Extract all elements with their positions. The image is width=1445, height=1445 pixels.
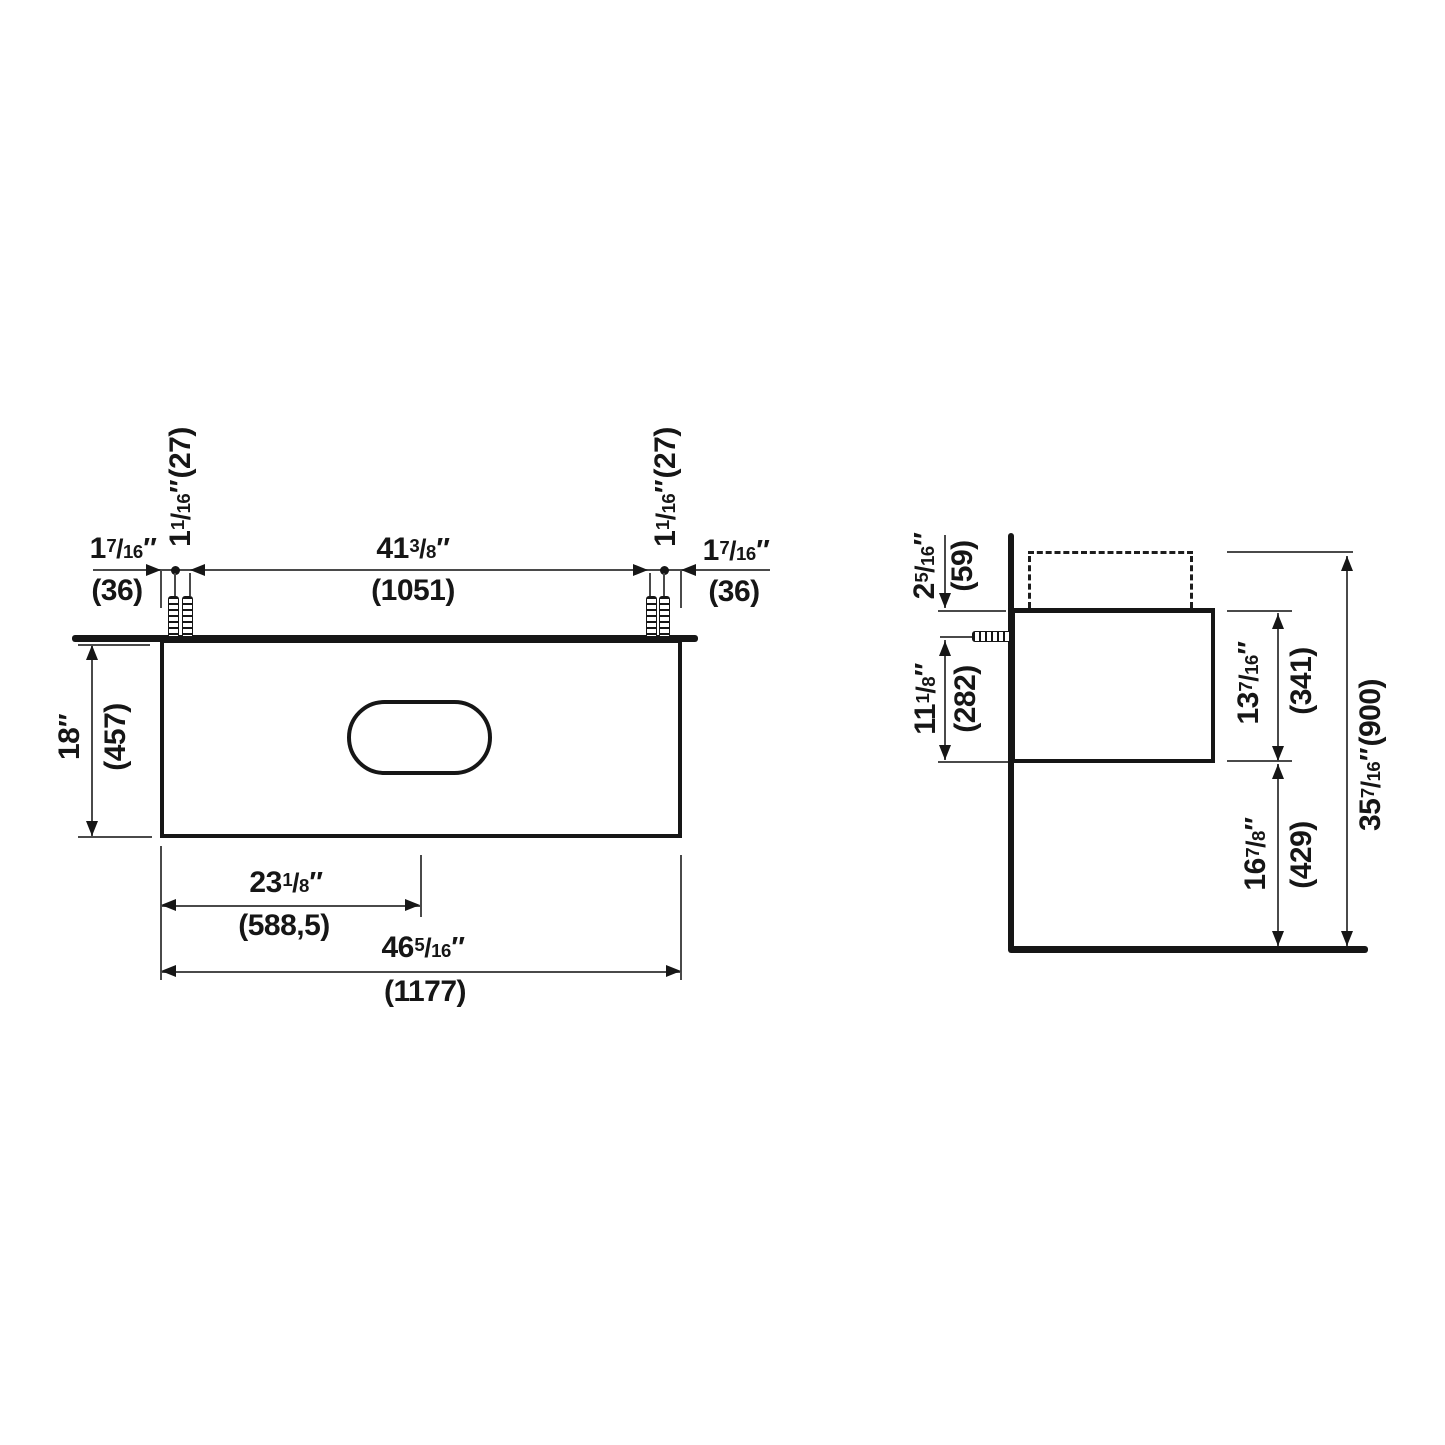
arrowhead [681,564,696,576]
dimension-line-depth [91,645,93,836]
dim-screw-span-metric: (1051) [371,576,455,606]
dim-anchor-inch: 111/8″ [911,663,941,735]
dim-screw-span-inch: 413/8″ [376,534,449,564]
arrowhead [190,564,205,576]
basin-cutout-oval [347,700,492,775]
arrowhead [86,645,98,660]
basin-dashed-top [1028,551,1193,554]
arrowhead [86,821,98,836]
dimension-line-width [161,971,681,973]
arrowhead [1272,746,1284,761]
extension-line [189,573,191,596]
arrowhead [161,965,176,977]
mounting-screw [646,596,657,637]
arrowhead [666,965,681,977]
extension-line [680,855,682,980]
dimension-line-anchor [944,640,946,760]
arrowhead [1272,614,1284,629]
dim-center-offset-metric: (588,5) [238,911,330,941]
extension-line [938,610,1006,612]
extension-line [938,761,1008,763]
extension-line [663,573,665,596]
arrowhead [1341,931,1353,946]
extension-line [420,855,422,917]
dim-screw-spacing-right: 11/16″(27) [651,427,681,547]
dim-width-inch: 465/16″ [381,933,464,963]
extension-line [78,836,152,838]
extension-line [78,644,150,646]
mounting-screw [168,596,179,637]
dim-clearance-metric: (429) [1287,821,1317,889]
extension-line [160,571,162,608]
dim-edge-offset-right-metric: (36) [708,577,759,607]
arrowhead [1272,764,1284,779]
dim-screw-spacing-left: 11/16″(27) [166,427,196,547]
basin-dashed-left [1028,556,1031,608]
arrowhead [939,745,951,760]
dim-center-offset-inch: 231/8″ [249,868,322,898]
mounting-screw [182,596,193,637]
extension-line [680,571,682,608]
extension-line [649,573,651,596]
basin-dashed-right [1190,556,1193,608]
arrowhead [161,899,176,911]
dim-rim-to-top-inch: 25/16″ [910,533,940,600]
dim-cabinet-height-inch: 137/16″ [1234,641,1264,724]
dimension-line-total-height [1346,556,1348,946]
dim-edge-offset-right-inch: 17/16″ [703,536,770,566]
dimension-line-center-offset [161,905,420,907]
dimension-line-clearance [1277,764,1279,946]
dimension-line-cabinet-height [1277,613,1279,761]
extension-line [174,573,176,596]
cabinet-side-outline [1011,608,1215,763]
wall-anchor-screw [972,631,1010,642]
extension-line [1227,610,1292,612]
mounting-screw [659,596,670,637]
dim-total-height: 357/16″(900) [1356,679,1386,831]
arrowhead [633,564,648,576]
arrowhead [939,641,951,656]
dim-cabinet-height-metric: (341) [1287,647,1317,715]
dim-depth-metric: (457) [101,703,131,771]
floor-line [1008,946,1368,953]
extension-line [160,846,162,980]
extension-line [1227,551,1353,553]
dim-edge-offset-left-metric: (36) [91,576,142,606]
arrowhead [1341,556,1353,571]
dim-width-metric: (1177) [384,977,466,1007]
dim-depth-inch: 18″ [55,714,85,760]
extension-line [940,636,972,638]
dim-rim-to-top-metric: (59) [948,540,978,591]
dim-clearance-inch: 167/8″ [1241,817,1271,890]
dim-edge-offset-left-inch: 17/16″ [90,534,157,564]
diagram-canvas: 17/16″ (36) 11/16″(27) 413/8″ (1051) 11/… [0,0,1445,1445]
arrowhead [1272,931,1284,946]
dim-anchor-metric: (282) [951,665,981,733]
arrowhead [146,564,161,576]
arrowhead [405,899,420,911]
